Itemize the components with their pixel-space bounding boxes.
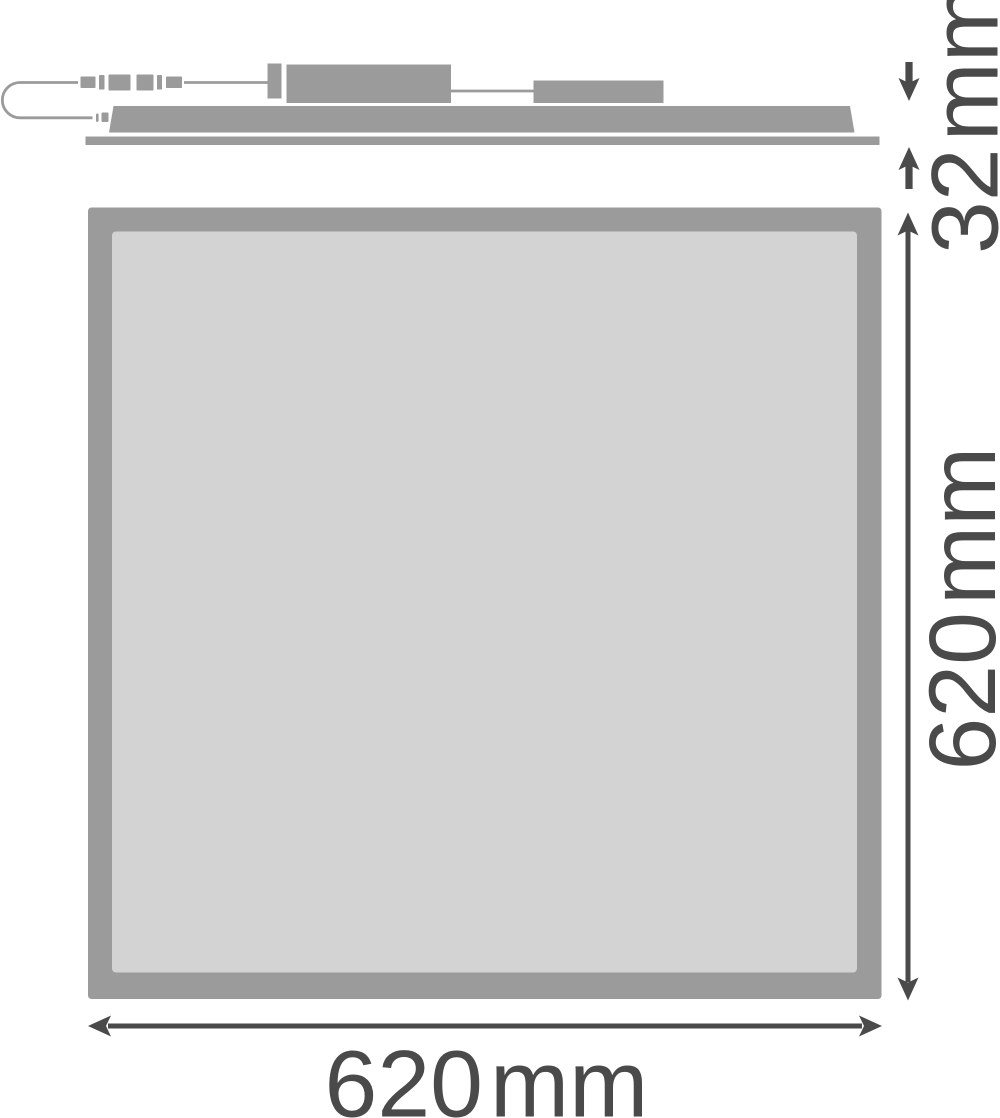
svg-text:32mm: 32mm xyxy=(913,0,1000,254)
